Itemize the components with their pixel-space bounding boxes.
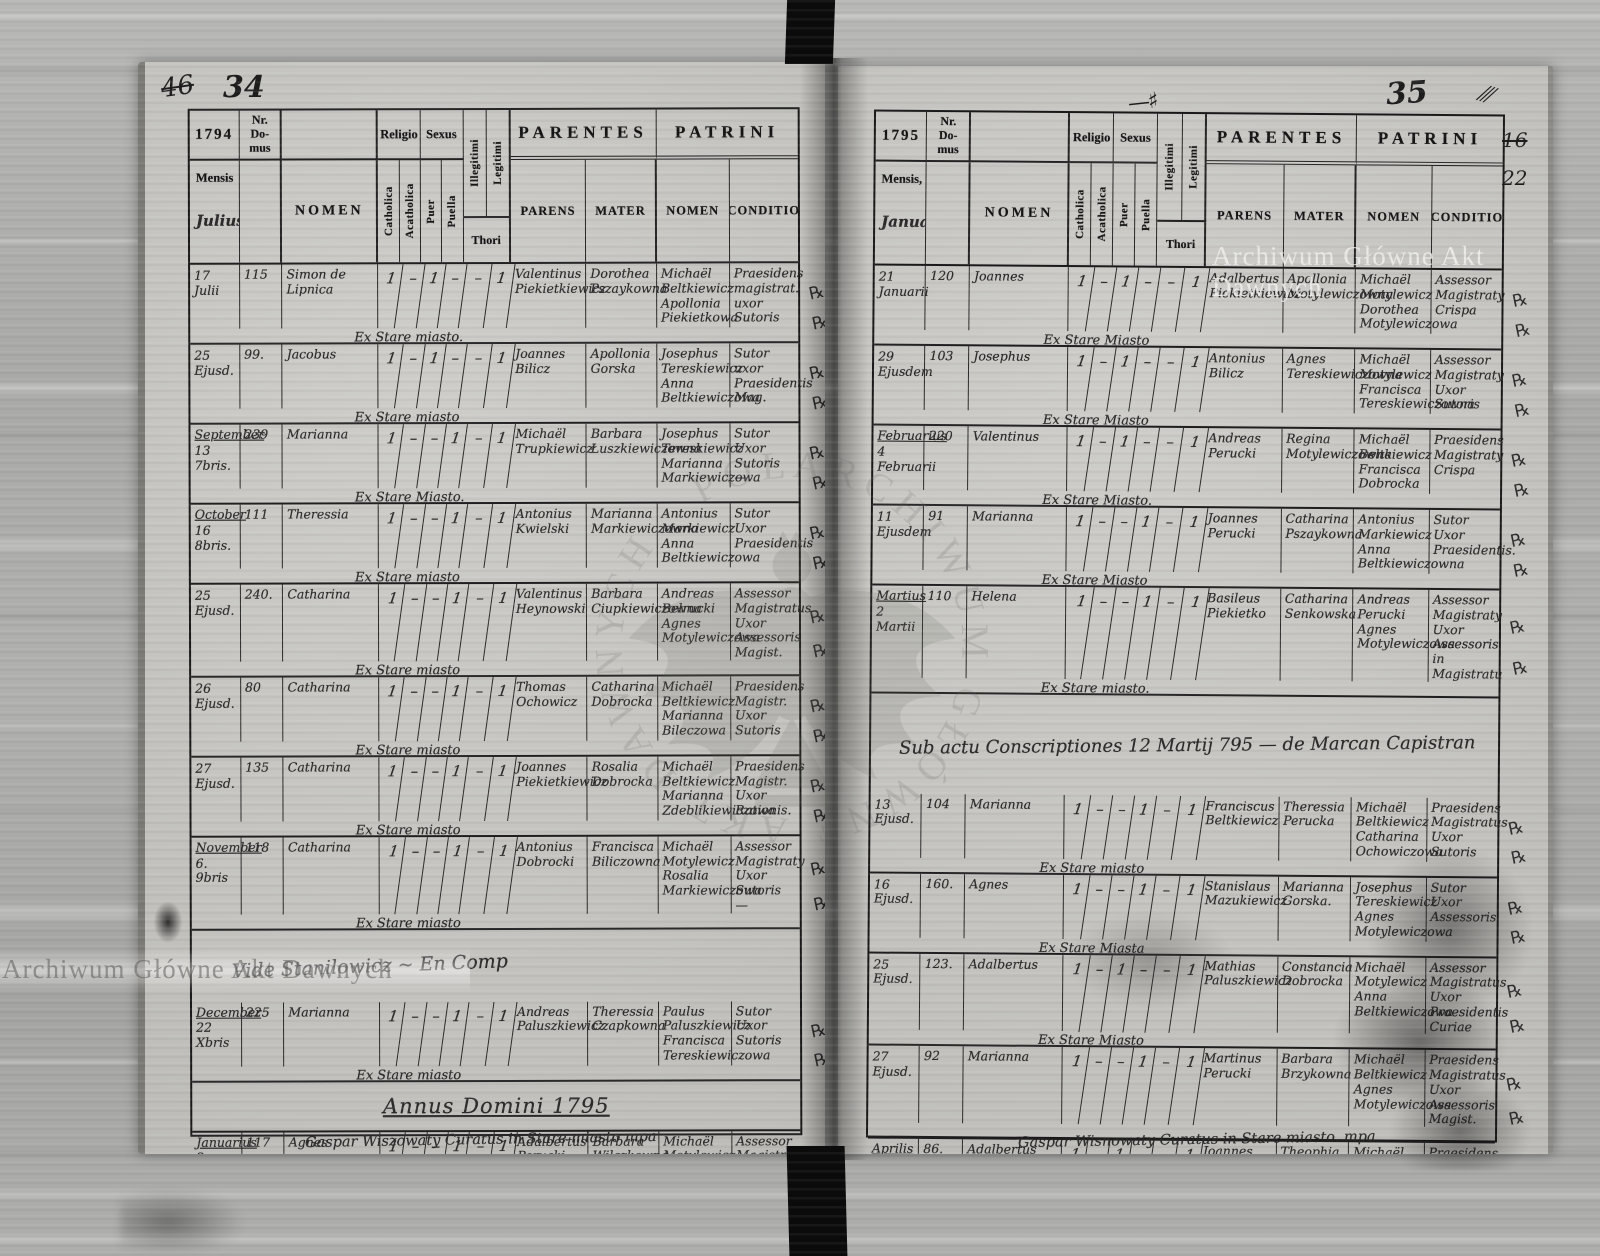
margin-check-mark-icon: ℞ (1513, 319, 1532, 342)
cell-date: 29 Ejusdem (874, 346, 926, 410)
margin-check-mark-icon: ℞ (811, 640, 825, 663)
patrini-nomen-label: NOMEN (1356, 165, 1432, 268)
ex-stare-miasto-note: Ex Stare Miasto (1042, 573, 1148, 589)
mensis-cell: Mensis,Januarius (875, 162, 927, 264)
margin-check-mark-icon: ℞ (1513, 399, 1532, 422)
cell-house-number: 115 (240, 265, 283, 329)
rows-right: 21 Januarii 120 Joannes 1 – 1 – – 1 Adal… (867, 266, 1502, 1154)
cell-mater: Catharina Senkowska (1280, 589, 1353, 681)
cell-conditio: Praesidens magistrat. uxor Sutoris (730, 263, 798, 327)
cell-mater: Dorothea Pszaykowna (586, 264, 657, 328)
date-value: 2 Januarii (196, 1150, 246, 1154)
month-header: September (194, 428, 236, 443)
margin-check-mark-icon: ℞ (1510, 290, 1529, 313)
margin-check-mark-icon: ℞ (1508, 927, 1527, 950)
cell-patrini-nomen: Michaël Beltkiewicz Francisca Dobrocka (1354, 429, 1430, 494)
nomen-label: NOMEN (282, 160, 378, 262)
cell-name: Josephus (969, 346, 1069, 411)
cell-mater: Constancia Dobrocka (1278, 956, 1351, 1033)
cell-date: 16 Ejusd. (870, 873, 922, 937)
book-spine-bottom (787, 1146, 848, 1256)
cell-mater: Rosalia Dobrocka (588, 756, 659, 820)
table-row: 25 Ejusd. 240. Catharina 1 – – 1 – 1 Val… (191, 583, 799, 677)
cell-conditio: Assessor Magistraty Crispa (1431, 270, 1502, 335)
cell-conditio: Assessor Magistraty Uxor Assessoris in M… (1428, 590, 1499, 682)
folio-number-old: 46 (159, 70, 196, 104)
register-page-right: —♯ 35 ⫻ 16 22 1795 Mensis,Januarius Nr. … (838, 66, 1553, 1154)
table-row: Februarius4 Februarii 220 Valentinus 1 –… (873, 426, 1501, 511)
cell-patrini-nomen: Michaël Motylewicz Dorothea Motylewiczow… (1356, 269, 1432, 334)
cell-patrini-nomen: Michaël Motylewicz Marianna Biliczowa (659, 1131, 732, 1154)
margin-check-mark-icon: ℞ (810, 392, 825, 415)
name-value: Valentinus (973, 428, 1039, 444)
date-value: 2 Martii (876, 603, 915, 633)
margin-check-mark-icon: ℞ (812, 1049, 825, 1072)
year-label: 1795 (876, 112, 928, 162)
cell-conditio: Sutor Uxor Assessoris (1426, 877, 1497, 942)
cell-date: 25 Ejusd. (190, 345, 240, 409)
ex-stare-miasto-note: Ex Stare Miasto (1038, 1033, 1144, 1049)
table-row: 27 Ejusd. 135 Catharina 1 – – 1 – 1 Joan… (191, 756, 799, 838)
cell-parens: Joannes Bilicz (511, 344, 587, 408)
month-header: December (196, 1005, 238, 1020)
cell-name: Marianna (968, 506, 1068, 571)
book-spine-top (785, 0, 835, 64)
cell-name: Catharina (284, 757, 380, 821)
pen-flourish: —♯ (1127, 89, 1158, 117)
cell-mater: Theressia Czapkowna (588, 1001, 659, 1065)
month-header: Februarius (877, 429, 921, 444)
thori-label: Thori (463, 218, 511, 262)
name-note (980, 298, 1065, 299)
name-value: Theressia (287, 506, 348, 521)
ex-stare-miasto-note: Ex Stare Miasto (1043, 333, 1149, 349)
cell-parens: Stanislaus Mazukiewicz (1201, 876, 1279, 941)
cell-parens: Thomas Ochowicz (512, 677, 588, 741)
cell-date: 27 Ejusd. (868, 1046, 920, 1123)
religio-label: Religio (378, 110, 421, 160)
parentes-label: PARENTES (1207, 114, 1358, 165)
cell-conditio: Assessor Magistraty Uxor Sutoris — (731, 836, 799, 913)
cell-conditio: Sutor Uxor Sutoris — (730, 423, 798, 487)
legitimi-label: Legitimi (1182, 114, 1207, 222)
cell-mater: Apollonia Gorska (587, 344, 658, 408)
folio-number: 35 (1385, 75, 1429, 113)
month-header: Aprilis (872, 1142, 916, 1154)
date-value: 13 7bris. (195, 442, 231, 472)
cell-patrini-nomen: Michaël Beltkiewicz Apollonia Piekietkow… (657, 263, 730, 327)
nomen-top-spacer (282, 110, 378, 160)
cell-conditio: Sutor Uxor Praesidentis. (1429, 510, 1500, 575)
cell-parens: Franciscus Beltkiewicz (1201, 796, 1279, 861)
margin-check-mark-icon: ℞ (811, 552, 825, 575)
cell-name: Valentinus (968, 426, 1068, 491)
cell-mater: Marianna Gorska. (1278, 876, 1351, 941)
cell-patrini-nomen: Josephus Tereskiewicz Anna Beltkiewiczow… (657, 343, 730, 407)
catholica-label: Catholica (378, 160, 400, 262)
margin-check-mark-icon: ℞ (807, 442, 825, 465)
catholica-label: Catholica (1069, 163, 1092, 265)
table-row: October16 8bris. 111 Theressia 1 – – 1 –… (191, 503, 799, 585)
cell-date: Januarius2 Januarii (192, 1132, 242, 1154)
date-value: 22 Xbris (196, 1020, 229, 1050)
cell-conditio: Praesidens Magistraty Crispa (1430, 430, 1501, 495)
name-value: Agnes (969, 876, 1008, 891)
religio-label: Religio (1070, 113, 1114, 163)
year-label: 1794 (190, 111, 240, 161)
name-value: Jacobus (287, 346, 337, 361)
margin-check-mark-icon: ℞ (1511, 657, 1530, 680)
baptism-table-1795: 1795 Mensis,Januarius Nr. Do- mus NOMEN … (866, 110, 1505, 1143)
table-header: 1795 Mensis,Januarius Nr. Do- mus NOMEN … (875, 112, 1503, 271)
legitimi-label: Legitimi (487, 110, 511, 218)
cell-mater: Theressia Perucka (1279, 796, 1352, 861)
parens-label: PARENS (1206, 164, 1285, 267)
margin-check-mark-icon: ℞ (811, 804, 825, 827)
margin-check-mark-icon: ℞ (1508, 617, 1527, 640)
cell-date: 11 Ejusdem (872, 506, 924, 570)
mensis-label: Mensis, (881, 172, 922, 186)
cell-conditio: Praesidens Magistratus Uxor Sutoris (1427, 797, 1498, 862)
cell-mater: Barbara Łuszkiewiczowna (587, 424, 658, 488)
margin-check-mark-icon: ℞ (1505, 980, 1524, 1003)
corner-shadow (120, 1180, 280, 1250)
puella-label: Puella (1135, 164, 1158, 266)
illegitimi-label: Illegitimi (1157, 114, 1182, 222)
cell-parens: Andreas Perucki (1204, 428, 1282, 493)
cell-parens: Martinus Perucki (1199, 1048, 1277, 1125)
cell-parens: Basileus Piekietko (1203, 588, 1281, 680)
cell-house-number: 120 (926, 266, 970, 330)
cell-date: Martius2 Martii (872, 586, 924, 678)
ex-stare-miasto-note: Ex Stare miasto (355, 663, 460, 678)
mensis-label: Mensis (196, 171, 234, 185)
cell-mater: Catharina Pszaykowna (1281, 509, 1354, 574)
cell-date: Aprilis3. Aprilis (867, 1139, 919, 1154)
ex-stare-miasto-note: Ex Stare miasto (1039, 860, 1144, 876)
ex-stare-miasto-note: Ex Stare miasto (355, 743, 460, 758)
name-note (976, 826, 1061, 827)
puer-label: Puer (421, 160, 443, 262)
table-row: Martius2 Martii 110 Helena 1 – – 1 – 1 B… (871, 586, 1499, 698)
name-note (977, 618, 1062, 619)
table-row: 26 Ejusd. 80 Catharina 1 – – 1 – 1 Thoma… (191, 676, 799, 758)
name-value: Josephus (973, 348, 1030, 363)
acatholica-label: Acatholica (400, 160, 422, 262)
margin-check-mark-icon: ℞ (1510, 370, 1529, 393)
cell-date: November6. 9bris (192, 837, 242, 914)
ex-stare-miasto-note: Ex Stare miasto (356, 1068, 461, 1083)
month-header: Martius (876, 589, 920, 604)
margin-check-mark-icon: ℞ (807, 282, 825, 305)
rows-left: 17 Julii 115 Simon de Lipnica 1 – 1 – – … (190, 263, 801, 1154)
cell-house-number: 80 (241, 677, 284, 741)
parentes-label: PARENTES (511, 110, 657, 160)
folio-number: 34 (223, 70, 265, 105)
margin-check-mark-icon: ℞ (808, 605, 825, 628)
cell-patrini-nomen: Michaël Beltkiewicz Marianna Bileczowa (658, 676, 731, 740)
puer-label: Puer (1113, 163, 1136, 265)
cell-date: 13 Ejusd. (870, 793, 922, 857)
cell-mater: Marianna Markiewiczowna (587, 504, 658, 568)
name-note (979, 378, 1064, 379)
nr-domus-column (240, 161, 283, 263)
ex-stare-miasto-note: Ex Stare miasto (355, 410, 460, 425)
cell-name: Theressia (283, 504, 379, 568)
margin-check-mark-icon: ℞ (1504, 1073, 1523, 1096)
patrini-nomen-label: NOMEN (657, 159, 730, 261)
thori-label: Thori (1157, 222, 1206, 266)
cell-conditio: Praesidens Magistr. Uxor Sutoris (731, 676, 799, 740)
month-header: November (196, 840, 238, 855)
date-value: 16 Ejusd. (874, 876, 914, 906)
cell-house-number: 110 (923, 586, 968, 678)
sexus-label: Sexus (421, 110, 464, 160)
cell-house-number: 225 (242, 1002, 285, 1066)
cell-patrini-nomen: Paulus Paluszkiewicz Francisca Tereskiew… (659, 1001, 732, 1065)
cell-date: Februarius4 Februarii (873, 426, 925, 490)
margin-check-mark-icon: ℞ (808, 695, 825, 718)
margin-number: 22 (1502, 166, 1527, 190)
illegitimi-label: Illegitimi (463, 110, 487, 218)
cell-house-number: 160. (921, 873, 965, 937)
cell-patrini-nomen: Antonius Markiewicz Anna Beltkiewiczowna (1354, 509, 1430, 574)
cell-name: Joannes (970, 266, 1070, 331)
cell-date: September13 7bris. (190, 425, 240, 489)
margin-check-mark-icon: ℞ (1509, 450, 1528, 473)
margin-check-mark-icon: ℞ (808, 775, 825, 798)
margin-check-mark-icon: ℞ (1506, 817, 1525, 840)
name-note (974, 986, 1059, 987)
ex-stare-miasto-note: Ex Stare miasto. (1041, 680, 1150, 696)
cell-patrini-nomen: Josephus Tereskiewicz Agnes Motylewiczow… (1351, 877, 1427, 942)
cell-parens: Adalbertus Piekietkiewicz (1205, 268, 1283, 333)
cell-date: 17 Julii (190, 265, 240, 329)
cell-conditio: Sutor uxor Praesidentis Mag. (730, 343, 798, 407)
cell-parens: Antonius Kwielski (512, 504, 588, 568)
cell-house-number: 220 (924, 426, 968, 490)
cell-conditio: Praesidens Magistr. Uxor Rationis. (731, 756, 799, 820)
date-value: 25 Ejusd. (873, 956, 913, 986)
acatholica-label: Acatholica (1091, 163, 1114, 265)
span-note-row: Sub actu Conscriptiones 12 Martij 795 — … (871, 693, 1499, 798)
hash-mark: ⫻ (1474, 78, 1496, 109)
mater-label: MATER (586, 160, 657, 262)
cell-house-number: 111 (241, 505, 284, 569)
name-value: Catharina (288, 839, 351, 854)
margin-check-mark-icon: ℞ (811, 724, 825, 747)
bright-scan-band (0, 948, 470, 992)
cell-house-number: 99. (240, 345, 283, 409)
table-row: 25 Ejusd. 123. Adalbertus 1 – 1 – – 1 Ma… (869, 953, 1497, 1051)
cell-conditio: Praesidens Magistratus Uxor Assessoris M… (1425, 1050, 1496, 1127)
cell-name: Marianna (965, 794, 1065, 859)
ex-stare-miasto-note: Ex Stare Miasto. (355, 490, 465, 505)
month-header: October (195, 508, 237, 523)
cell-name: Adalbertus (964, 954, 1064, 1032)
cell-house-number: 91 (924, 506, 968, 570)
patrini-label: PATRINI (656, 109, 797, 159)
margin-check-mark-icon: ℞ (1509, 530, 1528, 553)
cell-house-number: 240. (241, 585, 284, 662)
table-row: September13 7bris. 239 Marianna 1 – – 1 … (190, 423, 798, 505)
cell-parens: Antonius Bilicz (1205, 348, 1283, 413)
margin-check-mark-icon: ℞ (1511, 559, 1530, 582)
name-value: Catharina (288, 679, 351, 694)
cell-patrini-nomen: Josephus Tereskiewicz Marianna Markiewic… (657, 423, 730, 487)
archival-scan: 46 34 1794 MensisJulius Nr. Do- mus NOME… (0, 0, 1600, 1256)
nomen-label: NOMEN (970, 162, 1070, 265)
name-value: Joannes (974, 268, 1024, 283)
month-handwritten: Julius (196, 212, 235, 230)
cell-house-number: 86. (919, 1139, 963, 1154)
cell-date: 26 Ejusd. (191, 677, 241, 741)
name-value: Marianna (287, 426, 348, 441)
cell-name: Marianna (283, 424, 379, 488)
cell-patrini-nomen: Michaël Motylewicz Francisca Tereskiewic… (1355, 349, 1431, 414)
cell-name: Catharina (283, 584, 379, 661)
date-value: 25 Ejusd. (194, 348, 234, 378)
name-value: Helena (971, 588, 1016, 603)
ex-stare-miasto-note: Ex Stare Miasta (1039, 940, 1145, 956)
margin-number-old: 16 (1502, 128, 1527, 152)
cell-conditio: Praesidens Magistr. Uxor Lanii (1424, 1143, 1495, 1154)
table-row: December22 Xbris 225 Marianna 1 – – 1 – … (192, 1001, 800, 1083)
margin-check-mark-icon: ℞ (810, 472, 825, 495)
patrini-label: PATRINI (1357, 115, 1503, 166)
ex-stare-miasto-note: Ex Stare miasto (356, 916, 461, 931)
cell-house-number: 117 (242, 1132, 285, 1154)
table-row: 27 Ejusd. 92 Marianna 1 – – 1 – 1 Martin… (868, 1046, 1496, 1144)
nr-domus-label: Nr. Do- mus (927, 112, 971, 162)
cell-conditio: Sutor Uxor Praesidentis (730, 503, 798, 567)
table-row: 11 Ejusdem 91 Marianna 1 – – 1 – 1 Joann… (872, 506, 1500, 591)
ex-stare-miasto-note: Ex Stare Miasto. (1042, 493, 1152, 509)
name-value: Marianna (968, 1049, 1029, 1064)
date-value: 21 Januarii (879, 269, 929, 299)
table-row: 13 Ejusd. 104 Marianna 1 – – 1 – 1 Franc… (870, 793, 1498, 878)
puella-label: Puella (442, 160, 464, 262)
date-value: 16 8bris. (195, 522, 231, 552)
name-value: Catharina (288, 759, 351, 774)
span-note-text: Sub actu Conscriptiones 12 Martij 795 — … (899, 732, 1476, 759)
table-row: 25 Ejusd. 99. Jacobus 1 – 1 – – 1 Joanne… (190, 343, 798, 425)
cell-mater: Regina Motylewiczowna (1282, 429, 1355, 494)
cell-parens: Andreas Paluszkiewicz (513, 1001, 589, 1065)
name-value: Adalbertus (969, 956, 1038, 972)
date-value: 27 Ejusd. (195, 760, 235, 790)
cell-date: 25 Ejusd. (191, 585, 241, 662)
ex-stare-miasto-note: Ex Stare Miasto (1043, 413, 1149, 429)
cell-mater: Agnes Tereskiewiczowna (1282, 349, 1355, 414)
cell-mater: Barbara Ciupkiewiczowna (587, 584, 658, 661)
cell-parens: Joannes Perucki (1203, 508, 1281, 573)
date-value: 26 Ejusd. (195, 680, 235, 710)
table-row: November6. 9bris 118 Catharina 1 – – 1 –… (192, 836, 800, 930)
month-handwritten: Januarius (881, 213, 922, 231)
date-value: 25 Ejusd. (195, 588, 235, 618)
table-row: 21 Januarii 120 Joannes 1 – 1 – – 1 Adal… (874, 266, 1502, 351)
cell-name: Marianna (284, 1002, 380, 1066)
cell-conditio: Assessor Magistratus Uxor Assessoris Mag… (731, 583, 799, 660)
nomen-top-spacer (971, 112, 1070, 163)
cell-house-number: 103 (925, 346, 969, 410)
cell-patrini-nomen: Antonius Markiewicz Anna Beltkiewiczowa (658, 503, 731, 567)
cell-name: Catharina (284, 677, 380, 741)
ex-stare-miasto-note: Ex Stare miasto (356, 823, 461, 838)
ex-stare-miasto-note: Ex Stare miasto. (354, 330, 463, 345)
cell-parens: Mathias Paluszkiewicz (1200, 956, 1278, 1033)
ex-stare-miasto-note: Ex Stare miasto (355, 570, 460, 585)
cell-house-number: 239 (240, 425, 283, 489)
conditio-label: CONDITIO (1431, 166, 1502, 269)
cell-patrini-nomen: Andreas Bełrucki Agnes Motylewiczowa (658, 583, 731, 660)
cell-mater: Francisca Biliczowna (588, 836, 659, 913)
cell-name: Helena (967, 586, 1067, 678)
cell-date: 25 Ejusd. (869, 953, 921, 1030)
table-row: 17 Julii 115 Simon de Lipnica 1 – 1 – – … (190, 263, 798, 345)
cell-name: Agnes (965, 874, 1065, 939)
cell-name: Jacobus (283, 344, 379, 408)
margin-check-mark-icon: ℞ (1509, 847, 1528, 870)
name-value: Simon de Lipnica (286, 266, 345, 296)
cell-date: December22 Xbris (192, 1002, 242, 1066)
cell-patrini-nomen: Michaël Motylewicz Anna Beltkiewiczowa (1350, 957, 1426, 1034)
table-row: 16 Ejusd. 160. Agnes 1 – – 1 – 1 Stanisl… (869, 873, 1497, 958)
margin-check-mark-icon: ℞ (809, 1020, 825, 1043)
margin-check-mark-icon: ℞ (1507, 1108, 1526, 1131)
name-value: Catharina (287, 586, 350, 601)
name-value: Marianna (972, 508, 1033, 523)
section-text: Annus Domini 1795 (383, 1093, 610, 1118)
cell-house-number: 135 (241, 757, 284, 821)
conditio-label: CONDITIO (730, 159, 798, 261)
mensis-cell: MensisJulius (190, 161, 240, 263)
cell-date: October16 8bris. (191, 505, 241, 569)
cell-name: Catharina (284, 837, 380, 914)
cell-patrini-nomen: Michaël Beltkiewicz Agnes Motylewiczowa (1349, 1050, 1425, 1127)
cell-patrini-nomen: Michaël Motylewicz Rosalia Markiewiczowa (658, 836, 731, 913)
cell-name: Simon de Lipnica (282, 264, 378, 328)
cell-house-number: 104 (922, 793, 966, 857)
cell-patrini-nomen: Andreas Perucki Agnes Motylewiczowa (1353, 589, 1429, 681)
name-note (974, 1078, 1059, 1079)
cell-date: 27 Ejusd. (191, 757, 241, 821)
margin-check-mark-icon: ℞ (1506, 897, 1525, 920)
section-row: Annus Domini 1795 (192, 1081, 800, 1133)
cell-patrini-nomen: Michaël Beltkiewicz Marianna Zdeblikiewi… (658, 756, 731, 820)
name-value: Marianna (288, 1004, 349, 1019)
name-note (979, 458, 1064, 459)
cell-conditio: Assessor Magistratus. Uxor Praesidentis … (1425, 957, 1496, 1034)
cell-mater: Apollonia Motylewiczowna (1283, 269, 1356, 334)
cell-house-number: 118 (241, 837, 284, 914)
name-value: Marianna (970, 796, 1031, 811)
cell-parens: Michaël Trupkiewicz (511, 424, 587, 488)
margin-check-mark-icon: ℞ (1512, 479, 1531, 502)
margin-check-mark-icon: ℞ (810, 312, 825, 335)
cell-date: 21 Januarii (874, 266, 926, 330)
name-note (975, 906, 1060, 907)
cell-parens: Antonius Dobrocki (512, 837, 588, 914)
date-value: 13 Ejusd. (874, 796, 914, 826)
date-value: 17 Julii (194, 268, 219, 298)
mater-label: MATER (1284, 165, 1358, 268)
table-header: 1794 MensisJulius Nr. Do- mus NOMEN Reli… (190, 109, 798, 265)
margin-check-mark-icon: ℞ (1508, 1015, 1527, 1038)
date-value: 6. 9bris (196, 855, 228, 885)
margin-check-mark-icon: ℞ (808, 858, 825, 881)
